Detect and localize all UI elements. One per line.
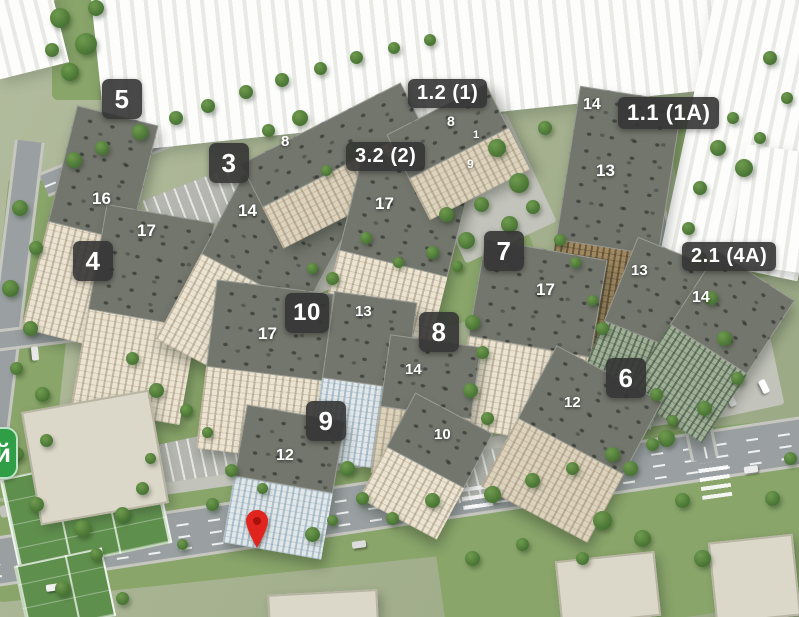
masterplan-scene: 16 8 14 17 8 1 9 14 13 17 17 13 14 17 13… — [0, 0, 799, 617]
floor-count-label: 17 — [536, 281, 555, 298]
building-badge-10[interactable]: 10 — [285, 293, 329, 333]
floor-count-label: 10 — [434, 427, 451, 442]
building-badge-4[interactable]: 4 — [73, 241, 113, 281]
building-badge-9[interactable]: 9 — [306, 401, 346, 441]
floor-count-label: 12 — [564, 395, 581, 410]
floor-count-label: 13 — [355, 304, 372, 319]
building-badge-2-1[interactable]: 2.1 (4A) — [682, 242, 776, 271]
floor-count-label: 13 — [596, 162, 615, 179]
floor-count-label: 12 — [276, 448, 294, 464]
floor-count-label: 1 — [473, 130, 479, 141]
location-pin[interactable] — [246, 510, 268, 548]
building-badge-5[interactable]: 5 — [102, 79, 142, 119]
pin-icon — [246, 510, 268, 548]
low-building — [267, 589, 378, 617]
crosswalk — [698, 460, 733, 500]
building-badge-3-2[interactable]: 3.2 (2) — [346, 142, 425, 171]
low-building — [555, 551, 661, 617]
floor-count-label: 14 — [583, 97, 601, 113]
floor-count-label: 14 — [405, 362, 422, 377]
floor-count-label: 8 — [447, 114, 455, 128]
building-badge-1-1[interactable]: 1.1 (1A) — [618, 97, 719, 129]
floor-count-label: 13 — [631, 263, 648, 278]
floor-count-label: 14 — [692, 290, 710, 306]
tree — [116, 592, 129, 605]
building-badge-3[interactable]: 3 — [209, 143, 249, 183]
building-badge-8[interactable]: 8 — [419, 312, 459, 352]
floor-count-label: 14 — [238, 202, 257, 219]
floor-count-label: 8 — [281, 134, 289, 149]
building-badge-6[interactable]: 6 — [606, 358, 646, 398]
building-badge-1-2[interactable]: 1.2 (1) — [408, 79, 487, 108]
tree — [538, 121, 552, 135]
low-building — [708, 534, 799, 617]
floor-count-label: 17 — [137, 222, 156, 239]
floor-count-label: 16 — [92, 190, 111, 207]
building-badge-7[interactable]: 7 — [484, 231, 524, 271]
floor-count-label: 17 — [258, 325, 277, 342]
floor-count-label: 9 — [467, 158, 474, 170]
low-building — [21, 390, 169, 526]
map-sign-partial: й — [0, 427, 18, 479]
floor-count-label: 17 — [375, 195, 394, 212]
